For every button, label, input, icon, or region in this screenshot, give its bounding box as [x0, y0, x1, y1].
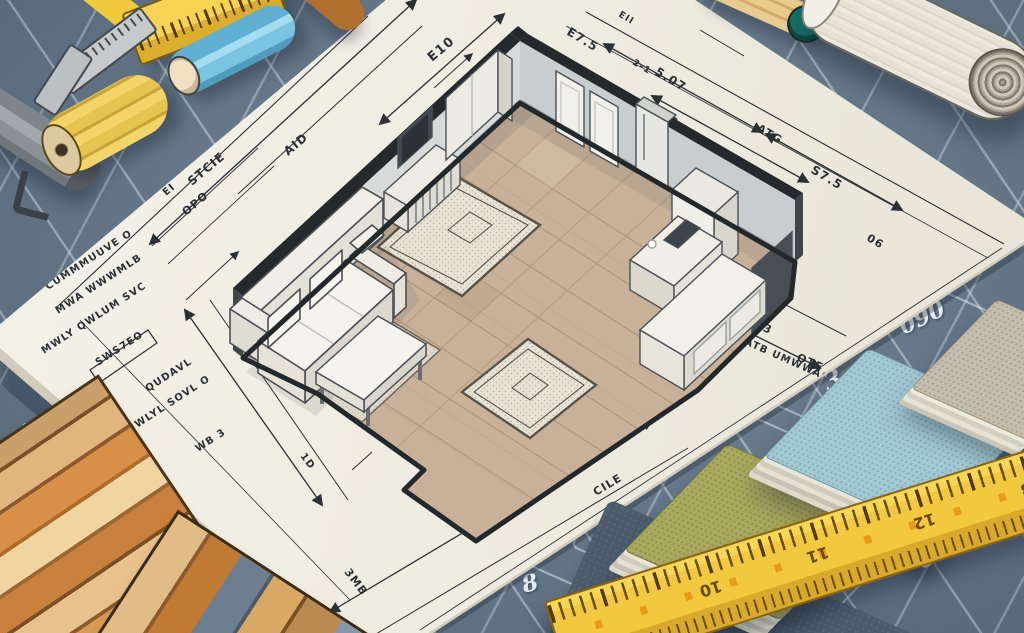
dim-label: 3MB	[342, 566, 371, 598]
dim-label: 1D	[298, 451, 317, 472]
dim-label: CILE	[591, 471, 625, 498]
scene-root: 40 35 80 30 3 090 8	[0, 0, 1024, 633]
annotation-row: SWS7EO	[94, 329, 146, 368]
annotation-row: MWLYL SOVL O	[124, 373, 213, 436]
ruler-number: 13	[1018, 475, 1024, 500]
dim-label: ATG	[754, 121, 785, 146]
dim-label: 5.07	[652, 65, 689, 95]
dim-label: AID	[281, 130, 311, 158]
ruler-number: 12	[911, 509, 938, 534]
dim-label: E10	[425, 34, 458, 65]
dim-label: 2-1	[630, 58, 652, 77]
dim-label: EII	[616, 10, 635, 27]
annotation-row: WB 3	[194, 427, 228, 455]
ruler-number: 10	[697, 576, 724, 601]
dim-label: OPO	[180, 189, 212, 218]
dim-label: E7.5	[564, 25, 601, 55]
dim-label: 06	[864, 231, 886, 251]
dim-label: S7.5	[808, 163, 845, 193]
ruler-number: 11	[804, 542, 831, 567]
